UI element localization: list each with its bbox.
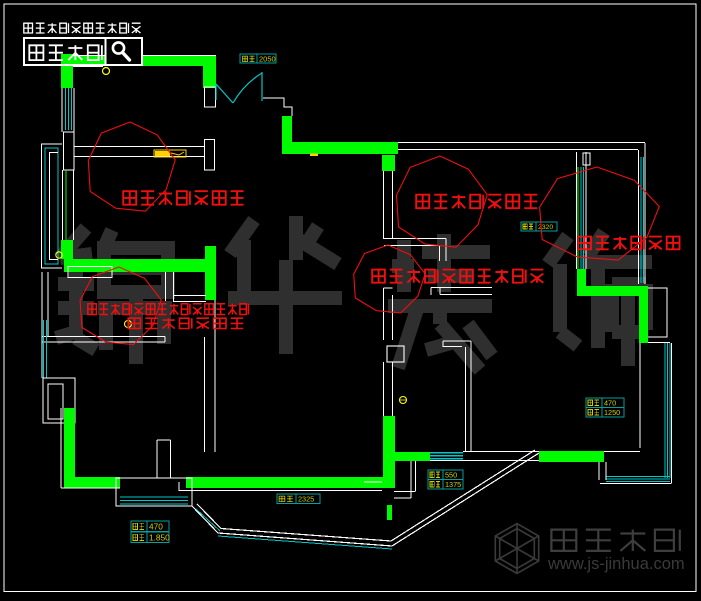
svg-text:1375: 1375 — [445, 480, 461, 489]
svg-text:470: 470 — [149, 522, 163, 532]
svg-text:2325: 2325 — [298, 495, 314, 504]
svg-text:1.850: 1.850 — [149, 533, 170, 543]
svg-text:2320: 2320 — [538, 224, 553, 231]
svg-text:2050: 2050 — [259, 55, 276, 64]
svg-text:www.js-jinhua.com: www.js-jinhua.com — [547, 555, 685, 573]
svg-text:1250: 1250 — [604, 408, 620, 417]
svg-text:550: 550 — [445, 471, 457, 480]
svg-text:470: 470 — [604, 399, 616, 408]
